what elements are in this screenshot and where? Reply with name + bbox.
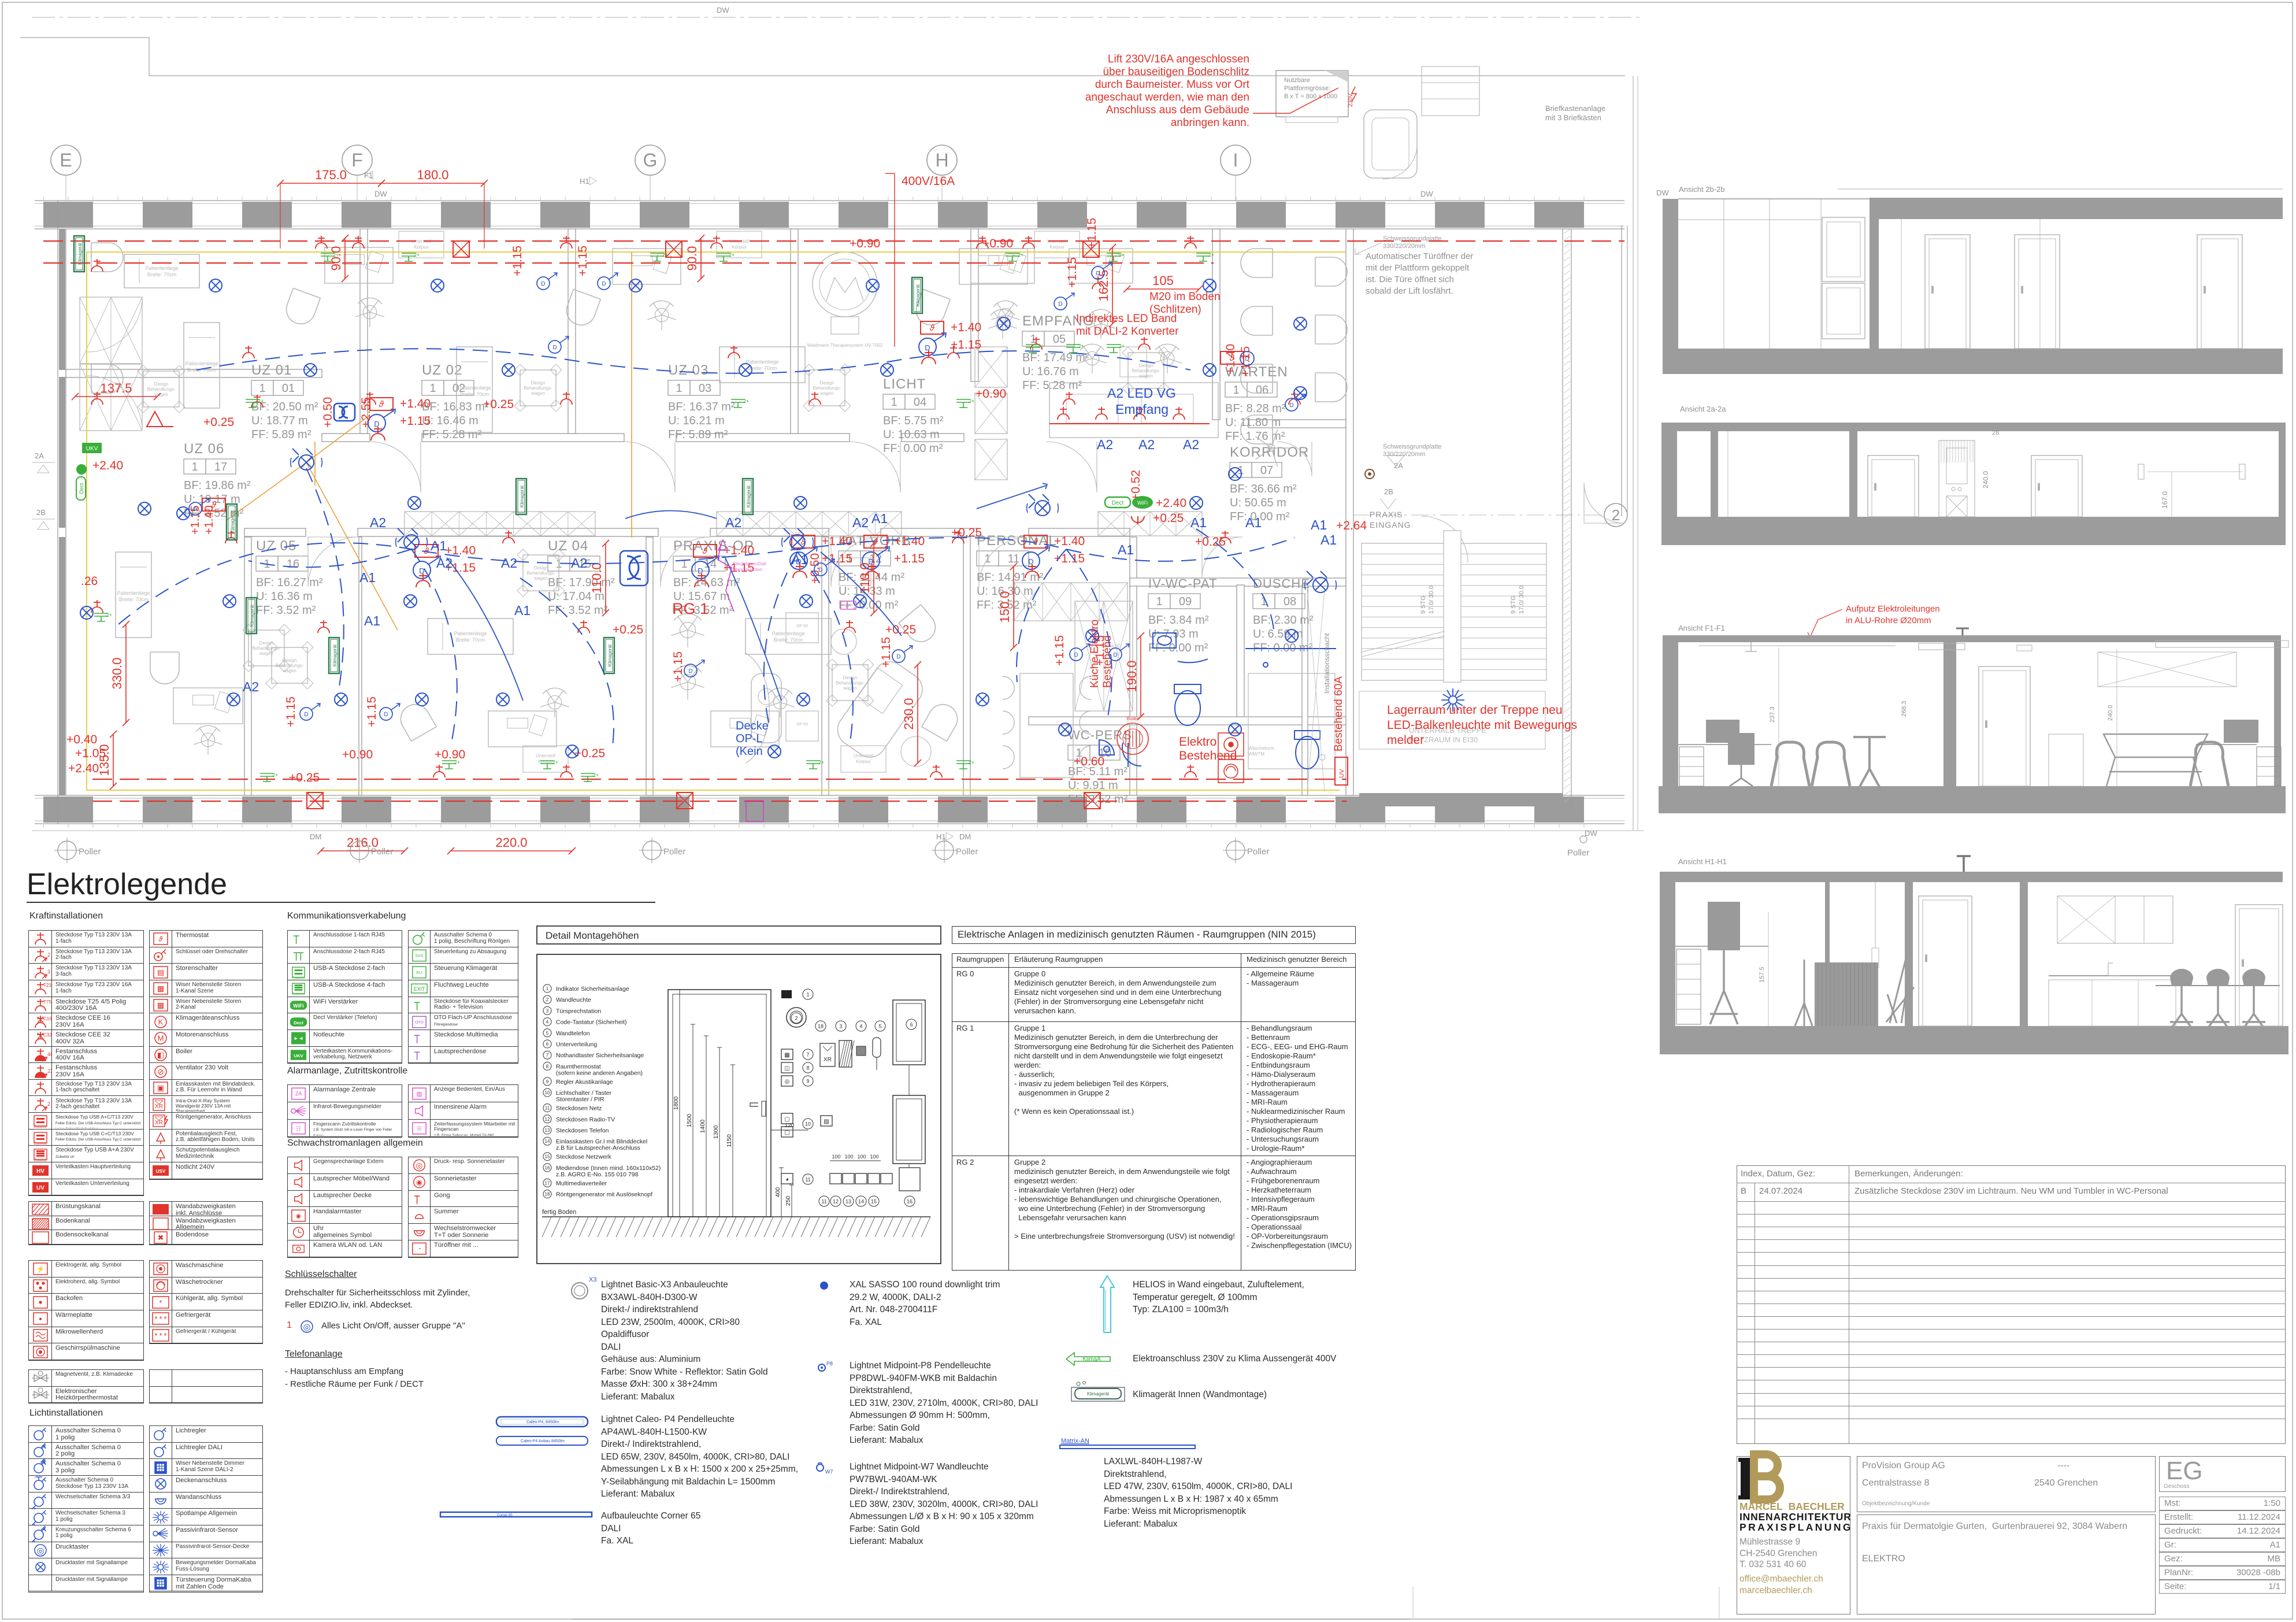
svg-text:2: 2 xyxy=(47,952,50,958)
svg-text:▨: ▨ xyxy=(824,1119,829,1125)
svg-text:2: 2 xyxy=(546,997,549,1002)
svg-text:11: 11 xyxy=(805,1177,810,1183)
svg-text:268.3: 268.3 xyxy=(1901,701,1908,717)
svg-text:⚡: ⚡ xyxy=(36,1265,44,1273)
svg-text:12: 12 xyxy=(545,1117,550,1122)
svg-text:XR: XR xyxy=(155,1120,163,1126)
svg-text:*: * xyxy=(154,1331,157,1340)
svg-text:10: 10 xyxy=(545,1090,550,1095)
svg-text:14: 14 xyxy=(858,1199,864,1205)
svg-text:M: M xyxy=(158,1034,164,1043)
svg-text:(sofern keine anderen Angaben): (sofern keine anderen Angaben) xyxy=(556,1069,643,1076)
svg-text:100: 100 xyxy=(844,1154,853,1160)
svg-text:Klimagerät: Klimagerät xyxy=(1087,1391,1110,1397)
svg-text:1500: 1500 xyxy=(686,1114,693,1128)
svg-text:Detail Montagehöhen: Detail Montagehöhen xyxy=(546,930,639,941)
svg-text:2: 2 xyxy=(795,1016,798,1021)
svg-text:Regler Akustikanlage: Regler Akustikanlage xyxy=(556,1079,613,1086)
svg-text:●: ● xyxy=(38,1316,42,1323)
svg-text:Indikator Sicherheitsanlage: Indikator Sicherheitsanlage xyxy=(556,986,629,993)
svg-text:Unterverteilung: Unterverteilung xyxy=(556,1041,597,1048)
svg-text:11: 11 xyxy=(821,1199,826,1205)
svg-text:K: K xyxy=(158,1017,164,1026)
svg-text:T23: T23 xyxy=(43,983,51,988)
svg-text:Multimediaverteiler: Multimediaverteiler xyxy=(556,1180,607,1187)
svg-text:18: 18 xyxy=(545,1192,550,1197)
svg-text:10: 10 xyxy=(805,1121,811,1127)
svg-text:in ALU-Rohre Ø20mm: in ALU-Rohre Ø20mm xyxy=(1846,616,1931,625)
svg-text:◫: ◫ xyxy=(784,1065,789,1072)
svg-text:◎: ◎ xyxy=(36,1546,44,1556)
svg-text:14: 14 xyxy=(545,1139,550,1144)
svg-text:Steckdosen Netz: Steckdosen Netz xyxy=(556,1105,602,1112)
svg-text:400: 400 xyxy=(774,1187,781,1198)
svg-text:Corner 65: Corner 65 xyxy=(497,1514,513,1517)
svg-text:Röntgengenerator mit Auslösekn: Röntgengenerator mit Auslöseknopf xyxy=(556,1191,652,1198)
svg-text:KlimaA: KlimaA xyxy=(1082,1356,1101,1362)
svg-text:16: 16 xyxy=(545,1165,550,1171)
svg-text:6: 6 xyxy=(910,1022,913,1028)
svg-text:USV: USV xyxy=(156,1169,166,1174)
svg-text:Zubehör: Zubehör xyxy=(292,993,305,996)
svg-text:Ansicht H1-H1: Ansicht H1-H1 xyxy=(1678,857,1727,866)
svg-text:◎: ◎ xyxy=(416,1161,423,1170)
svg-text:230V: 230V xyxy=(47,1068,51,1074)
svg-text:18: 18 xyxy=(818,1024,824,1030)
svg-text:*: * xyxy=(159,1298,162,1307)
svg-text:Ansicht 2a-2a: Ansicht 2a-2a xyxy=(1680,405,1726,413)
svg-text:Ansicht 2b-2b: Ansicht 2b-2b xyxy=(1679,185,1725,194)
svg-text:Steckdosen Radio-TV: Steckdosen Radio-TV xyxy=(556,1116,615,1123)
svg-text:250: 250 xyxy=(785,1196,792,1206)
svg-text:1300: 1300 xyxy=(713,1125,719,1139)
svg-text:240.0: 240.0 xyxy=(2107,705,2114,721)
svg-text:*: * xyxy=(164,1331,166,1340)
svg-text:◕: ◕ xyxy=(785,1176,789,1183)
svg-text:9: 9 xyxy=(806,1079,809,1084)
svg-text:⊘: ⊘ xyxy=(157,1067,164,1076)
svg-text:►◄: ►◄ xyxy=(294,1035,303,1041)
svg-text:Türsprechstation: Türsprechstation xyxy=(556,1008,601,1014)
svg-text:SVG: SVG xyxy=(415,954,423,958)
svg-text:8: 8 xyxy=(546,1064,549,1069)
svg-text:C32: C32 xyxy=(43,1032,51,1038)
svg-text:*: * xyxy=(159,1314,162,1323)
svg-text:11: 11 xyxy=(545,1106,550,1111)
svg-text:Nothandtaster Sicherheitsanlag: Nothandtaster Sicherheitsanlage xyxy=(556,1052,644,1059)
svg-text:1: 1 xyxy=(806,992,809,998)
svg-text:◉: ◉ xyxy=(416,1179,422,1187)
svg-text:Aufputz Elektroleitungen: Aufputz Elektroleitungen xyxy=(1846,604,1940,614)
svg-text:1400: 1400 xyxy=(699,1120,706,1134)
svg-text:240.0: 240.0 xyxy=(1982,471,1990,488)
svg-text:3: 3 xyxy=(546,1008,549,1013)
svg-text:28: 28 xyxy=(1992,429,1999,436)
svg-text:Matrix-AN: Matrix-AN xyxy=(1061,1438,1089,1445)
svg-text:Zubehör: Zubehör xyxy=(34,1125,47,1128)
svg-text:Dect: Dect xyxy=(294,1020,303,1025)
svg-text:Storentaster / PIR: Storentaster / PIR xyxy=(556,1096,604,1103)
svg-text:1800: 1800 xyxy=(673,1097,680,1110)
svg-text:17: 17 xyxy=(545,1180,550,1186)
svg-text:✖: ✖ xyxy=(158,1234,164,1242)
svg-text:☵: ☵ xyxy=(417,1126,422,1132)
svg-text:Wandleuchte: Wandleuchte xyxy=(556,997,591,1003)
svg-text:z.B. AGRO E-No. 155 010 798: z.B. AGRO E-No. 155 010 798 xyxy=(556,1171,639,1178)
svg-text:z.B für Lautsprecher-Anschluss: z.B für Lautsprecher-Anschluss xyxy=(556,1145,640,1151)
svg-text:EXIT: EXIT xyxy=(414,986,425,992)
svg-text:13: 13 xyxy=(545,1128,550,1133)
svg-text:XR: XR xyxy=(155,1103,163,1110)
svg-text:▣: ▣ xyxy=(157,1084,164,1093)
svg-text:Code-Tastatur (Sicherheit): Code-Tastatur (Sicherheit) xyxy=(556,1019,627,1026)
svg-text:UKV: UKV xyxy=(294,1053,303,1058)
svg-text:KLI: KLI xyxy=(416,971,422,975)
svg-text:Zubehör: Zubehör xyxy=(34,1142,47,1145)
svg-text:Zubehör: Zubehör xyxy=(292,976,305,979)
svg-text:WiFi: WiFi xyxy=(293,1003,303,1009)
svg-text:◉: ◉ xyxy=(296,1213,301,1220)
svg-text:W7: W7 xyxy=(825,1469,833,1475)
svg-text:◧: ◧ xyxy=(157,1051,164,1060)
svg-text:4: 4 xyxy=(859,1024,862,1030)
svg-text:𝜗: 𝜗 xyxy=(159,935,163,943)
svg-text:157.5: 157.5 xyxy=(1759,966,1765,983)
svg-text:Caleo-P4 Anbau 8450lm: Caleo-P4 Anbau 8450lm xyxy=(521,1439,565,1443)
svg-text:HV: HV xyxy=(36,1168,44,1175)
svg-text:2: 2 xyxy=(47,1101,50,1107)
svg-text:▢: ▢ xyxy=(784,1130,789,1136)
svg-text:T75: T75 xyxy=(43,999,51,1005)
svg-text:120: 120 xyxy=(785,1123,795,1129)
svg-text:13: 13 xyxy=(845,1199,851,1205)
svg-text:P8: P8 xyxy=(826,1361,833,1367)
svg-text:*: * xyxy=(164,1314,166,1323)
svg-text:◔: ◔ xyxy=(418,1246,421,1253)
svg-text:UV: UV xyxy=(36,1185,44,1191)
svg-text:100: 100 xyxy=(832,1154,840,1160)
svg-text:1: 1 xyxy=(546,986,549,991)
svg-text:3: 3 xyxy=(47,969,50,975)
svg-text:▩: ▩ xyxy=(784,1052,789,1058)
svg-text:400V: 400V xyxy=(47,1051,51,1057)
svg-text:Wandtelefon: Wandtelefon xyxy=(556,1030,590,1037)
svg-text:15: 15 xyxy=(545,1154,550,1160)
svg-text:167.0: 167.0 xyxy=(2161,491,2169,509)
svg-text:Steckdose Netzwerk: Steckdose Netzwerk xyxy=(556,1154,611,1161)
svg-text:▤: ▤ xyxy=(157,968,164,976)
svg-text:4: 4 xyxy=(546,1020,549,1025)
svg-text:Caleo-P4, 8450lm: Caleo-P4, 8450lm xyxy=(526,1420,559,1424)
svg-text:5: 5 xyxy=(878,1024,881,1030)
svg-text:Zubehör: Zubehör xyxy=(34,1159,47,1162)
svg-text:*: * xyxy=(159,1331,162,1340)
svg-text:fertig Boden: fertig Boden xyxy=(542,1209,576,1216)
svg-text:12: 12 xyxy=(833,1199,839,1205)
svg-text:Steckdosen Telefon: Steckdosen Telefon xyxy=(556,1127,609,1134)
svg-text:3: 3 xyxy=(839,1024,842,1030)
svg-text:16: 16 xyxy=(907,1199,913,1205)
svg-text:▩: ▩ xyxy=(157,984,164,993)
svg-text:1150: 1150 xyxy=(726,1134,733,1147)
svg-text:XR: XR xyxy=(824,1057,832,1063)
svg-text:ZA: ZA xyxy=(295,1091,302,1097)
svg-text:Ansicht F1-F1: Ansicht F1-F1 xyxy=(1678,624,1725,632)
svg-text:100: 100 xyxy=(870,1154,878,1160)
svg-text:☷: ☷ xyxy=(296,1126,301,1132)
svg-text:6: 6 xyxy=(546,1042,549,1047)
svg-text:8: 8 xyxy=(806,1065,809,1071)
svg-text:7: 7 xyxy=(806,1052,809,1058)
svg-text:OTO: OTO xyxy=(415,1020,424,1024)
svg-text:237.3: 237.3 xyxy=(1769,706,1776,723)
svg-text:◎: ◎ xyxy=(303,1322,310,1332)
svg-text:5: 5 xyxy=(546,1031,549,1036)
svg-text:*: * xyxy=(154,1314,157,1323)
svg-text:9: 9 xyxy=(546,1079,549,1084)
svg-text:15: 15 xyxy=(871,1199,877,1205)
svg-text:▢: ▢ xyxy=(784,1116,789,1123)
svg-text:C16: C16 xyxy=(43,1016,51,1021)
svg-text:▧: ▧ xyxy=(416,1091,422,1098)
svg-text:100: 100 xyxy=(857,1154,866,1160)
svg-text:◎: ◎ xyxy=(785,1079,790,1085)
svg-text:X3: X3 xyxy=(589,1276,596,1283)
svg-text:▩: ▩ xyxy=(157,1001,164,1010)
svg-text:7: 7 xyxy=(546,1053,549,1058)
